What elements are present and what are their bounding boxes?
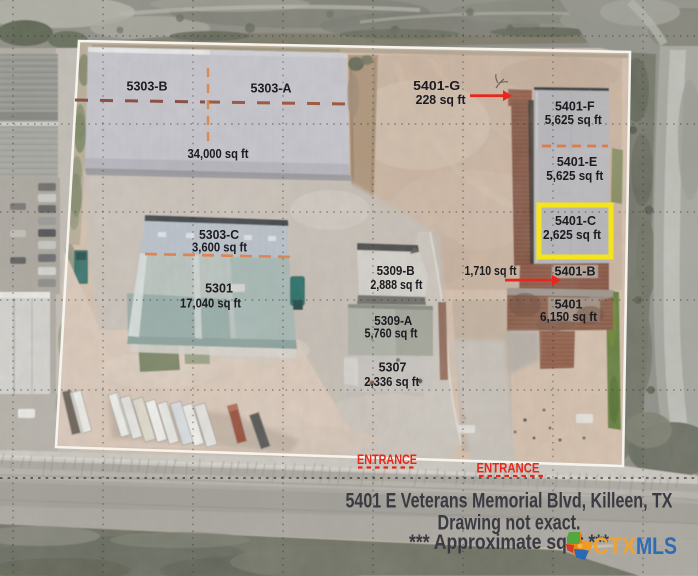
svg-text:5301: 5301 bbox=[205, 282, 233, 296]
svg-text:5303-B: 5303-B bbox=[127, 80, 168, 94]
svg-text:2,336 sq ft: 2,336 sq ft bbox=[364, 375, 420, 389]
svg-text:5401-E: 5401-E bbox=[557, 155, 597, 169]
svg-text:6,150 sq ft: 6,150 sq ft bbox=[540, 310, 598, 324]
svg-text:3,600 sq ft: 3,600 sq ft bbox=[192, 241, 248, 255]
svg-text:ENTRANCE: ENTRANCE bbox=[357, 452, 417, 467]
svg-text:MLS: MLS bbox=[636, 533, 677, 560]
svg-text:5307: 5307 bbox=[379, 361, 407, 375]
svg-text:ENTRANCE: ENTRANCE bbox=[477, 461, 540, 476]
svg-text:5401-B: 5401-B bbox=[555, 265, 596, 279]
svg-text:2,888 sq ft: 2,888 sq ft bbox=[370, 278, 423, 292]
svg-text:5401 E Veterans Memorial Blvd,: 5401 E Veterans Memorial Blvd, Killeen, … bbox=[346, 490, 673, 513]
svg-text:5401-F: 5401-F bbox=[555, 100, 595, 114]
svg-text:CTX: CTX bbox=[593, 533, 636, 560]
svg-text:5401-G: 5401-G bbox=[413, 79, 460, 93]
svg-text:5,625 sq ft: 5,625 sq ft bbox=[545, 113, 603, 127]
svg-text:1,710 sq ft: 1,710 sq ft bbox=[465, 264, 518, 278]
svg-text:2,625 sq ft: 2,625 sq ft bbox=[543, 228, 602, 242]
svg-text:5309-B: 5309-B bbox=[377, 264, 415, 278]
svg-text:5,625 sq ft: 5,625 sq ft bbox=[546, 169, 604, 183]
svg-text:5401-C: 5401-C bbox=[555, 214, 596, 228]
svg-text:34,000 sq ft: 34,000 sq ft bbox=[188, 147, 250, 161]
svg-text:228 sq ft: 228 sq ft bbox=[416, 93, 467, 107]
svg-text:5,760 sq ft: 5,760 sq ft bbox=[365, 327, 419, 341]
svg-text:17,040 sq ft: 17,040 sq ft bbox=[180, 297, 242, 311]
svg-text:5303-A: 5303-A bbox=[251, 82, 292, 96]
